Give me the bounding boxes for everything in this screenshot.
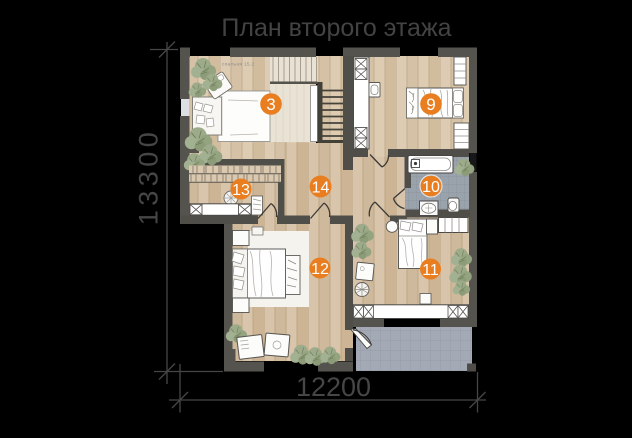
svg-text:План второго этажа: План второго этажа [221,14,451,42]
svg-text:11: 11 [422,262,439,279]
svg-text:13: 13 [232,182,250,199]
svg-text:13300: 13300 [134,128,164,226]
svg-text:9: 9 [426,95,435,114]
svg-text:3: 3 [266,95,275,114]
svg-text:10: 10 [422,179,440,196]
svg-text:14: 14 [312,180,330,197]
svg-text:спальня 15.2: спальня 15.2 [222,62,255,68]
svg-text:12: 12 [311,261,329,278]
svg-text:12200: 12200 [296,372,371,402]
